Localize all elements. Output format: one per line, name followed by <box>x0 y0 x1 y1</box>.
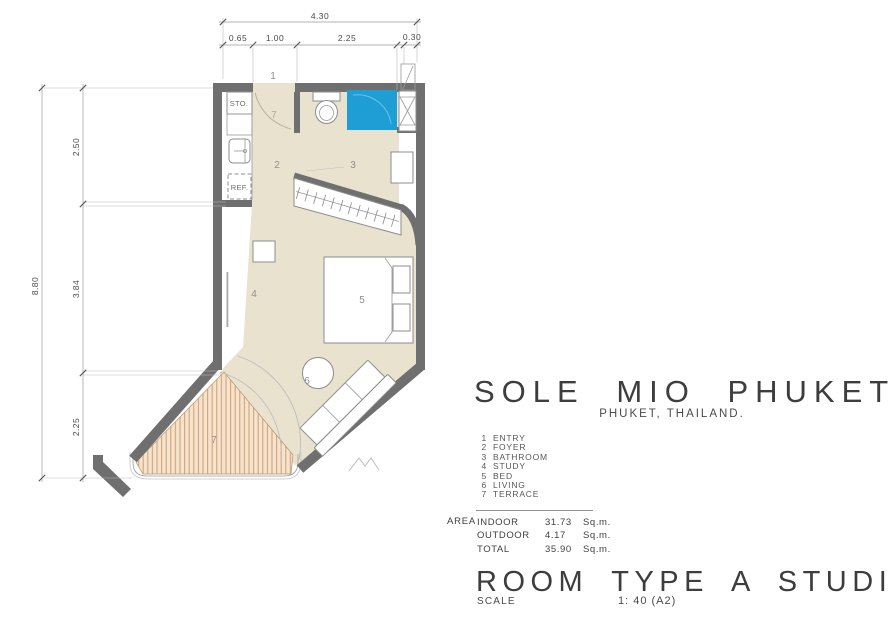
storage-label: STO. <box>230 99 249 108</box>
label-foyer: 2 <box>274 160 280 171</box>
floorplan-drawing: 4.30 0.65 1.00 2.25 0.30 8.80 2.50 3.84 … <box>0 0 891 640</box>
pillow-1 <box>393 266 410 293</box>
toilet-bowl <box>316 101 338 124</box>
label-living: 6 <box>304 376 310 387</box>
fridge-label: REF. <box>231 183 248 192</box>
dim-top-seg-4: 0.30 <box>403 32 421 42</box>
kitchenette: STO. REF. <box>227 92 252 200</box>
area-row-indoor: INDOOR31.73Sq.m. <box>477 516 611 529</box>
label-entry: 1 <box>270 71 276 82</box>
label-bed: 5 <box>359 295 365 306</box>
floorplan-sheet: 4.30 0.65 1.00 2.25 0.30 8.80 2.50 3.84 … <box>0 0 891 640</box>
glass-panel <box>227 272 229 327</box>
wall-corner-stub <box>93 455 131 497</box>
divider <box>476 510 593 511</box>
scale-value: 1: 40 (A2) <box>618 595 676 607</box>
dim-top-seg-2: 1.00 <box>266 33 284 43</box>
dim-top-total: 4.30 <box>311 11 329 21</box>
area-label: AREA <box>447 516 476 527</box>
wall-left <box>213 92 222 370</box>
dim-left-seg-3: 2.25 <box>71 418 81 436</box>
label-entry-swing: 7 <box>271 110 277 121</box>
entry-threshold <box>253 83 295 92</box>
room-type-title: ROOM TYPE A STUDIO <box>476 566 891 599</box>
project-title: SOLE MIO PHUKET <box>474 374 870 410</box>
pillow-2 <box>393 304 410 331</box>
exterior-chevron <box>349 458 379 471</box>
area-table: INDOOR31.73Sq.m. OUTDOOR4.17Sq.m. TOTAL3… <box>477 516 611 556</box>
dim-left-total: 8.80 <box>30 277 40 295</box>
wall-entry-partition <box>294 92 300 133</box>
dim-left-seg-2: 3.84 <box>71 280 81 298</box>
shower <box>347 90 397 130</box>
room-legend: 1ENTRY 2FOYER 3BATHROOM 4STUDY 5BED 6LIV… <box>477 434 548 500</box>
label-bathroom: 3 <box>350 160 356 171</box>
dim-top-seg-3: 2.25 <box>338 33 356 43</box>
dim-left-seg-1: 2.50 <box>71 138 81 156</box>
study-desk <box>253 241 275 262</box>
wall-top-left <box>213 83 253 92</box>
project-location: PHUKET, THAILAND. <box>474 408 870 420</box>
label-terrace: 7 <box>211 435 217 446</box>
area-row-total: TOTAL35.90Sq.m. <box>477 543 611 556</box>
counter <box>227 114 252 135</box>
dim-top-seg-1: 0.65 <box>229 33 247 43</box>
scale-label: SCALE <box>477 596 516 607</box>
area-row-outdoor: OUTDOOR4.17Sq.m. <box>477 529 611 542</box>
label-study: 4 <box>251 289 257 300</box>
toilet-tank <box>313 92 340 101</box>
washbasin <box>391 152 413 183</box>
legend-item-terrace: 7TERRACE <box>477 490 548 499</box>
